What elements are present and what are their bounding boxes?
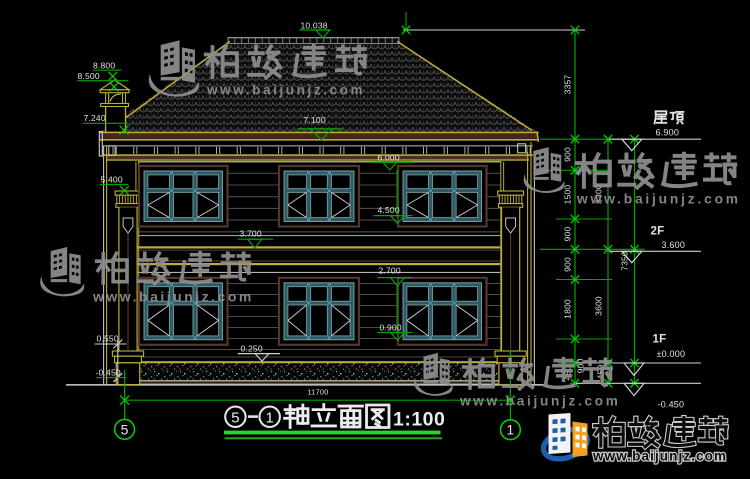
svg-text:2F: 2F xyxy=(651,226,665,238)
svg-text:8.800: 8.800 xyxy=(93,61,115,71)
svg-text:3.600: 3.600 xyxy=(662,240,686,250)
svg-text:6.000: 6.000 xyxy=(378,153,400,163)
svg-text:8.500: 8.500 xyxy=(78,71,100,81)
svg-text:1:100: 1:100 xyxy=(393,409,445,431)
svg-text:6.900: 6.900 xyxy=(656,128,680,138)
svg-text:7.100: 7.100 xyxy=(304,115,326,125)
svg-text:900: 900 xyxy=(563,257,573,272)
svg-text:7.240: 7.240 xyxy=(84,113,106,123)
svg-text:1: 1 xyxy=(266,409,274,426)
svg-text:1500: 1500 xyxy=(563,185,573,205)
svg-text:0.550: 0.550 xyxy=(97,334,119,344)
svg-text:5: 5 xyxy=(231,409,239,426)
svg-text:-0.450: -0.450 xyxy=(658,400,685,410)
svg-text:3.700: 3.700 xyxy=(240,229,262,239)
svg-text:3357: 3357 xyxy=(563,75,573,95)
svg-text:www.baijunjz.com: www.baijunjz.com xyxy=(576,192,741,207)
svg-text:3600: 3600 xyxy=(594,296,604,316)
svg-text:11700: 11700 xyxy=(307,387,328,396)
svg-text:10.038: 10.038 xyxy=(301,21,328,31)
svg-text:5: 5 xyxy=(121,421,129,437)
svg-text:5.400: 5.400 xyxy=(101,175,123,185)
svg-text:www.baijunjz.com: www.baijunjz.com xyxy=(92,289,254,305)
svg-text:-0.450: -0.450 xyxy=(96,368,121,378)
svg-text:1800: 1800 xyxy=(563,299,573,319)
svg-text:www.baijunjz.com: www.baijunjz.com xyxy=(206,83,365,98)
svg-text:1: 1 xyxy=(506,422,514,438)
svg-text:www.baijunjz.com: www.baijunjz.com xyxy=(592,449,727,464)
svg-text:1F: 1F xyxy=(653,334,667,346)
svg-text:±0.000: ±0.000 xyxy=(657,349,686,359)
svg-text:0.900: 0.900 xyxy=(380,323,402,333)
svg-text:900: 900 xyxy=(563,227,573,242)
svg-text:900: 900 xyxy=(563,147,573,162)
svg-text:www.baijunjz.com: www.baijunjz.com xyxy=(459,394,621,409)
svg-text:0.250: 0.250 xyxy=(241,344,263,354)
svg-text:2.700: 2.700 xyxy=(379,266,401,276)
